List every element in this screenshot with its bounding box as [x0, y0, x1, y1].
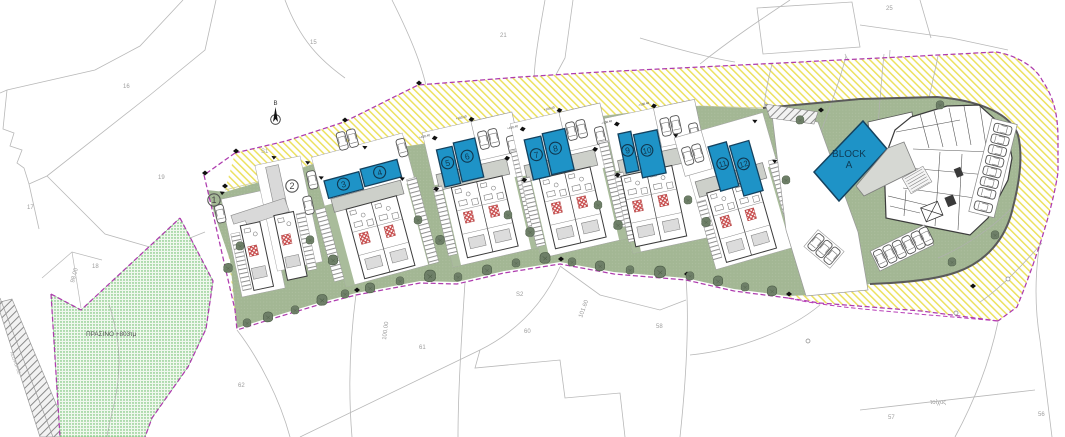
svg-text:56: 56: [1038, 412, 1045, 418]
svg-text:1: 1: [211, 195, 216, 205]
svg-text:18: 18: [92, 264, 99, 270]
svg-text:S1: S1: [261, 149, 269, 155]
svg-text:16: 16: [123, 84, 130, 90]
svg-text:Β: Β: [273, 101, 277, 107]
svg-text:58: 58: [656, 324, 663, 330]
svg-text:BLOCK: BLOCK: [832, 149, 866, 160]
svg-text:62: 62: [238, 383, 245, 389]
svg-text:A: A: [846, 160, 853, 171]
svg-text:19: 19: [158, 175, 165, 181]
svg-text:τοίχος: τοίχος: [930, 400, 946, 406]
svg-text:S2: S2: [516, 292, 524, 298]
svg-text:17: 17: [27, 205, 34, 211]
svg-text:61: 61: [419, 345, 426, 351]
svg-text:15: 15: [310, 40, 317, 46]
svg-text:2: 2: [289, 181, 294, 191]
svg-text:57: 57: [888, 415, 895, 421]
svg-text:ΠΡΑΣΙΝΟ +803τμ: ΠΡΑΣΙΝΟ +803τμ: [86, 331, 137, 338]
svg-text:21: 21: [500, 33, 507, 39]
svg-text:60: 60: [524, 329, 531, 335]
svg-text:25: 25: [886, 6, 893, 12]
